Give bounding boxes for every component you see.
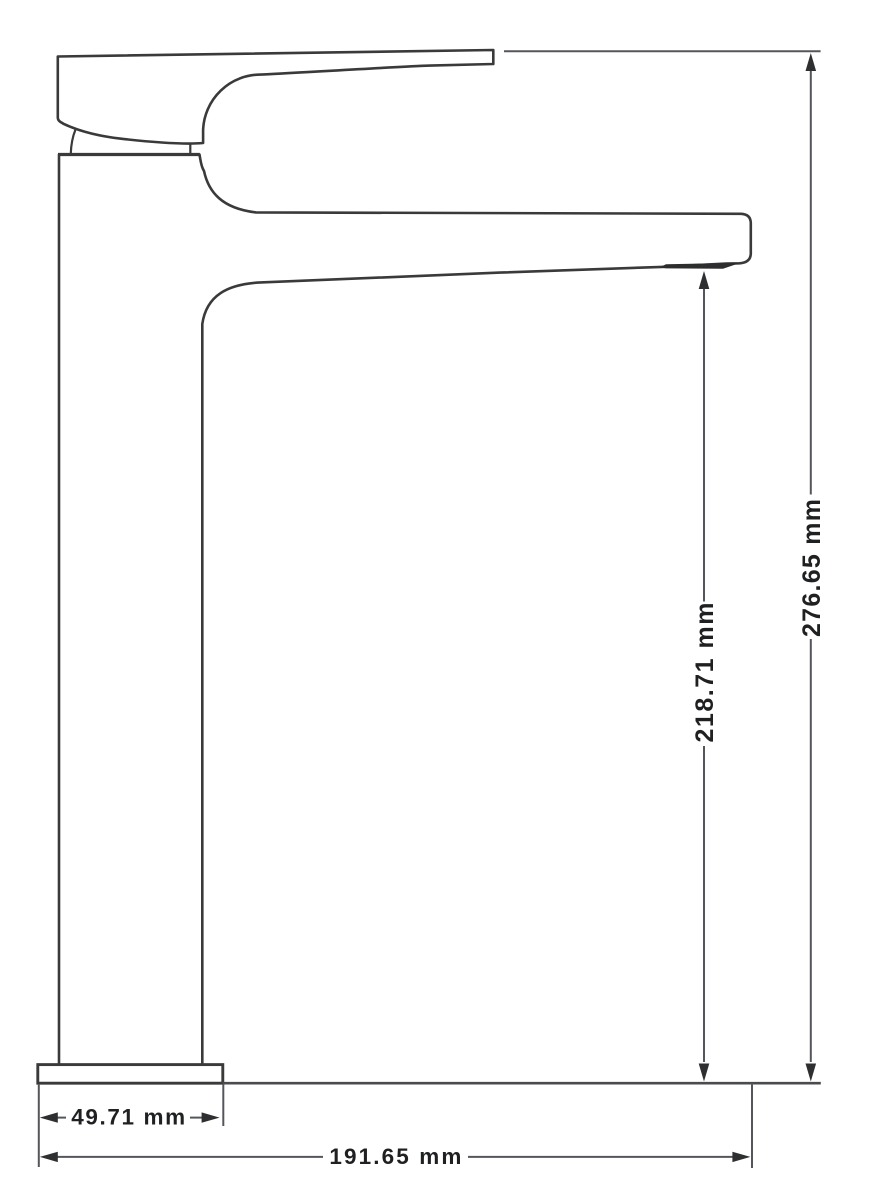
svg-text:49.71 mm: 49.71 mm xyxy=(71,1105,185,1130)
svg-text:276.65 mm: 276.65 mm xyxy=(798,499,826,637)
svg-text:218.71 mm: 218.71 mm xyxy=(691,603,719,743)
svg-text:191.65 mm: 191.65 mm xyxy=(329,1144,461,1169)
